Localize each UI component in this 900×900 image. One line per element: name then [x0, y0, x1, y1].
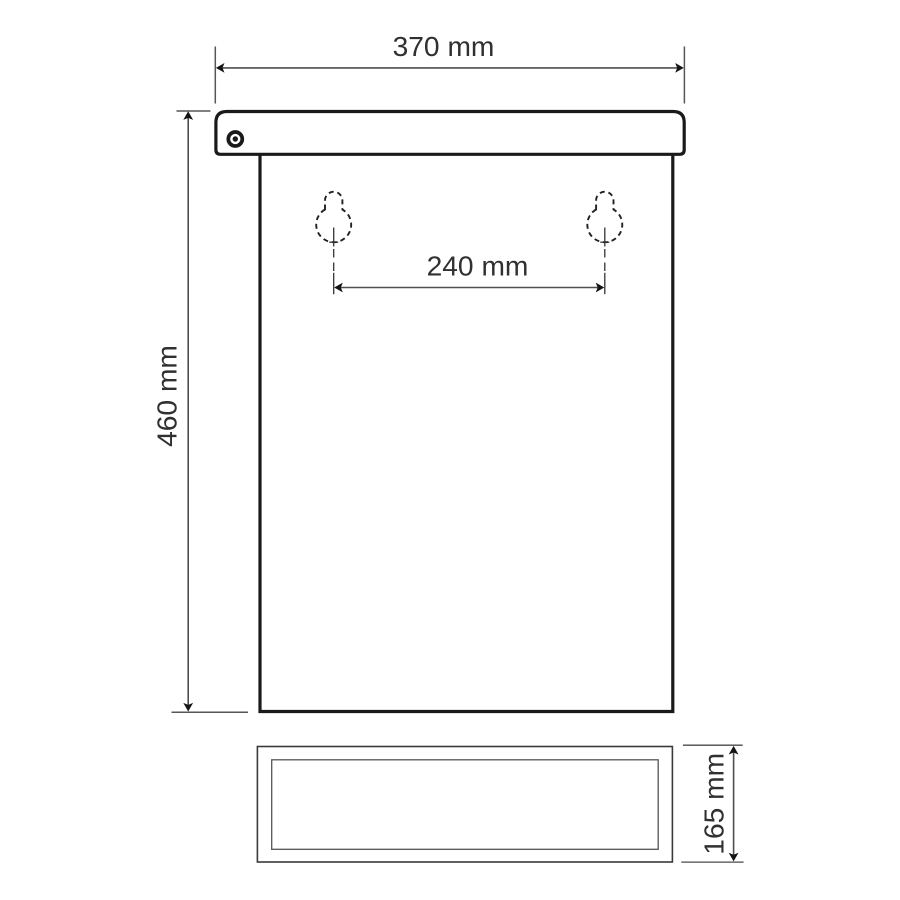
- svg-text:165 mm: 165 mm: [698, 753, 730, 855]
- svg-text:460 mm: 460 mm: [151, 345, 183, 447]
- svg-text:370 mm: 370 mm: [393, 30, 495, 62]
- svg-text:240 mm: 240 mm: [427, 249, 529, 281]
